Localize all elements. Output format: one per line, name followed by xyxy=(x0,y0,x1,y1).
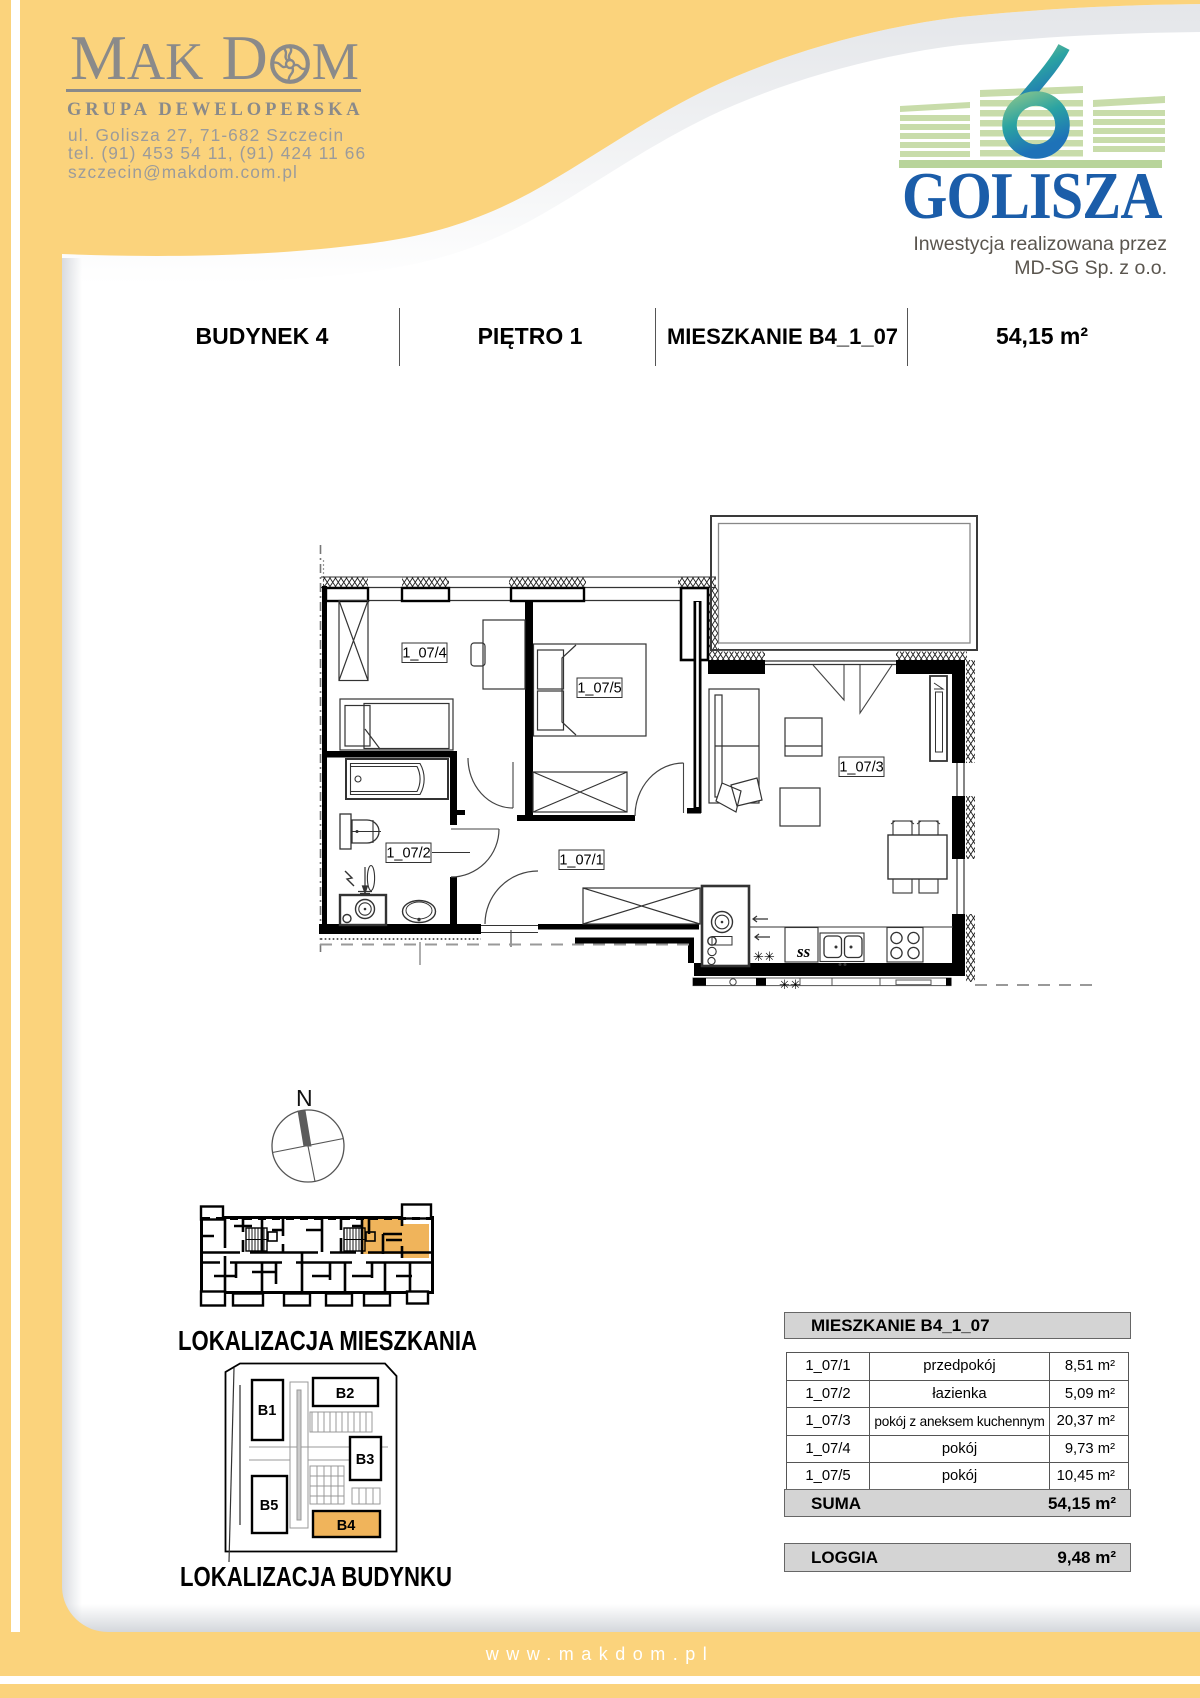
svg-text:B2: B2 xyxy=(336,1386,355,1402)
svg-text:ss: ss xyxy=(796,942,811,961)
svg-text:1_07/3: 1_07/3 xyxy=(839,760,883,776)
svg-text:N: N xyxy=(296,1085,313,1111)
svg-text:B4: B4 xyxy=(337,1518,356,1534)
svg-text:✳✳: ✳✳ xyxy=(753,949,775,964)
svg-text:1_07/1: 1_07/1 xyxy=(559,853,603,869)
svg-text:1_07/2: 1_07/2 xyxy=(386,846,430,862)
svg-text:1_07/4: 1_07/4 xyxy=(402,646,446,662)
svg-text:B3: B3 xyxy=(356,1452,375,1468)
svg-text:B5: B5 xyxy=(260,1498,279,1514)
svg-text:✳✳: ✳✳ xyxy=(779,977,801,992)
svg-text:1_07/5: 1_07/5 xyxy=(577,681,621,697)
svg-text:B1: B1 xyxy=(258,1403,277,1419)
